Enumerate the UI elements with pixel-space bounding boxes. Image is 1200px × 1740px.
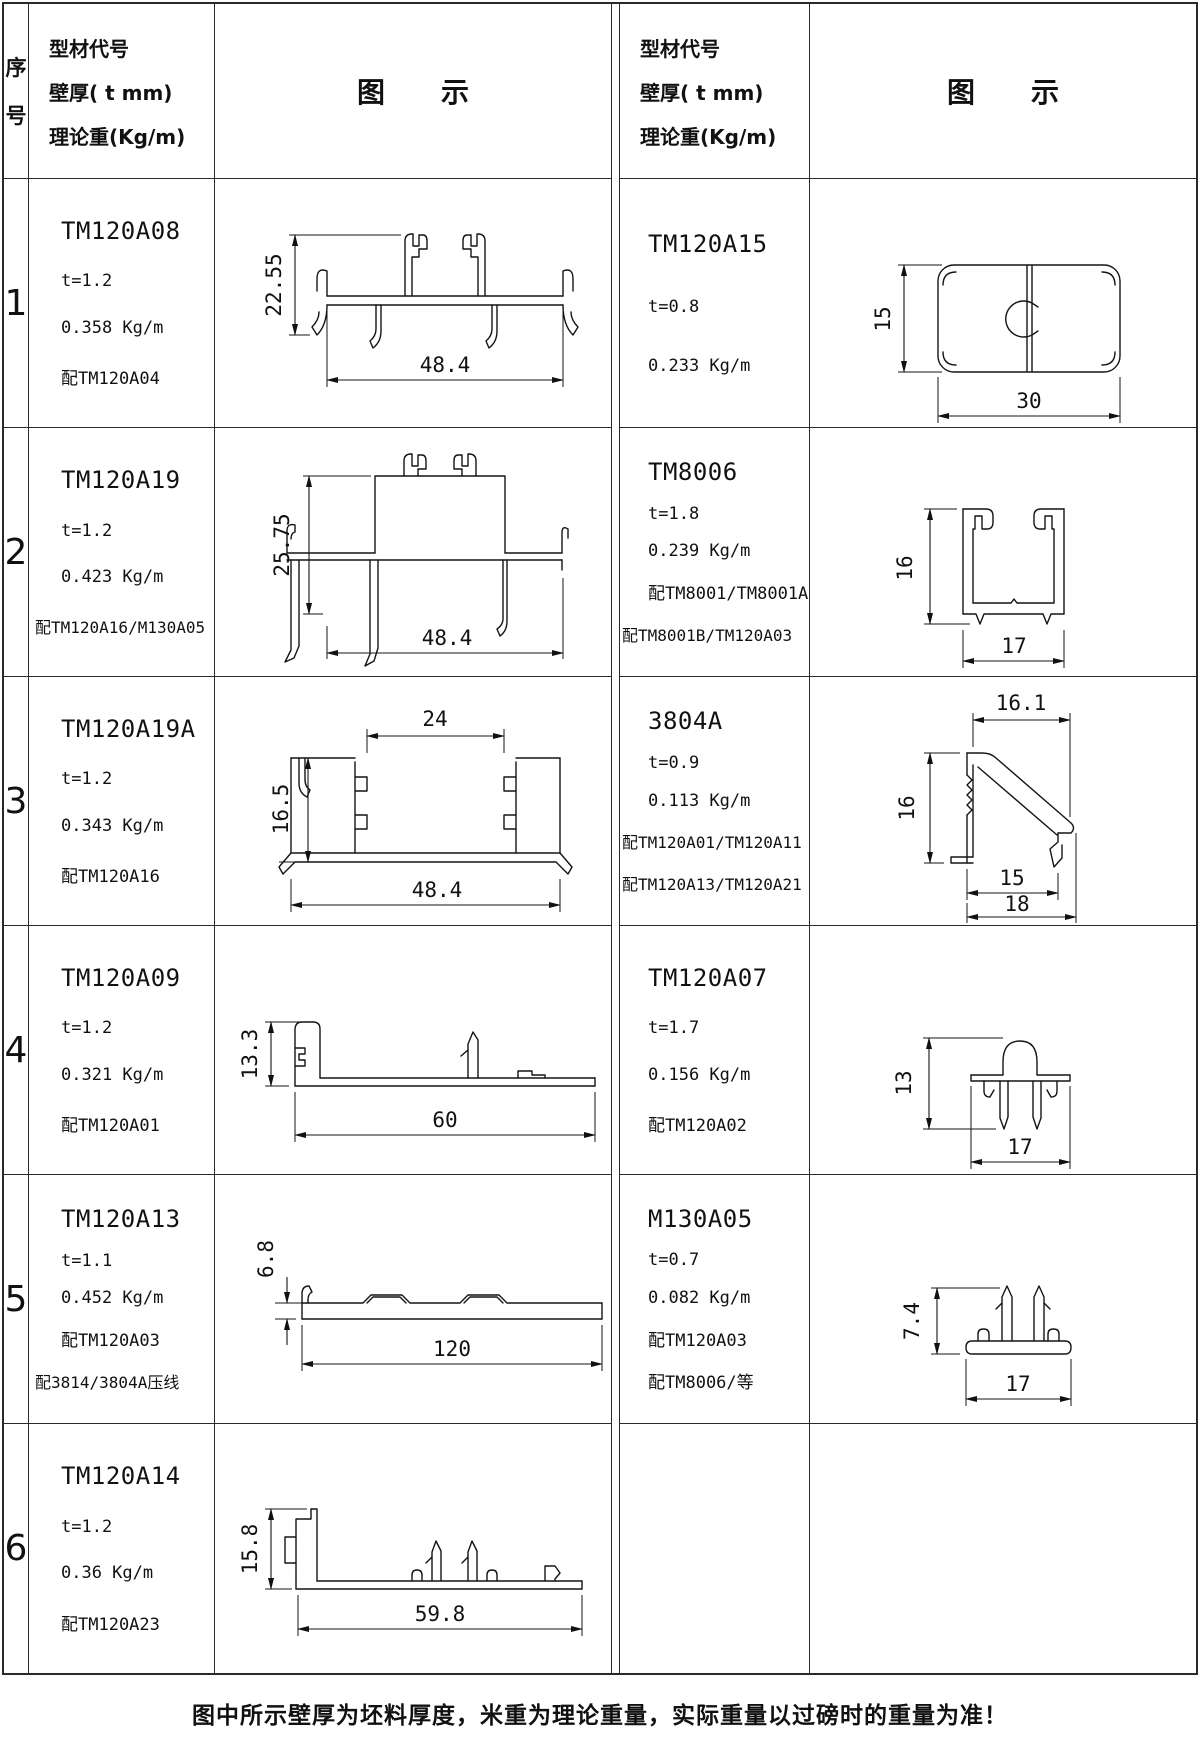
table-divider <box>612 1424 620 1673</box>
profile-code: M130A05 <box>648 1205 753 1233</box>
wall-thickness: t=1.7 <box>648 1018 699 1038</box>
header-spec-line: 型材代号 <box>49 33 214 62</box>
header-seq: 序 号 <box>4 4 29 179</box>
profile-code: TM120A13 <box>61 1205 181 1233</box>
header-spec-line: 壁厚( t mm) <box>49 77 214 106</box>
profile-drawing-tm8006: 16 17 <box>810 428 1194 674</box>
diagram-cell-tm120a15: 15 30 <box>810 179 1196 428</box>
dim-width-label: 30 <box>1016 389 1041 413</box>
wall-thickness: t=0.9 <box>648 753 699 773</box>
spec-cell-tm120a13: TM120A13 t=1.1 0.452 Kg/m 配TM120A03 配381… <box>29 1175 215 1424</box>
wall-thickness: t=1.2 <box>61 1018 112 1038</box>
diagram-cell-tm8006: 16 17 <box>810 428 1196 677</box>
wall-thickness: t=1.2 <box>61 1517 112 1537</box>
spec-cell-tm120a19: TM120A19 t=1.2 0.423 Kg/m 配TM120A16/M130… <box>29 428 215 677</box>
header-seq-bottom: 号 <box>6 100 27 130</box>
matching-profiles: 配TM120A01 <box>61 1111 160 1136</box>
header-spec-line: 型材代号 <box>640 33 809 62</box>
profile-code: TM120A15 <box>648 230 768 258</box>
profile-drawing-3804a: 16.1 16 15 18 <box>810 677 1194 923</box>
seq-cell: 4 <box>4 926 29 1175</box>
spec-cell-tm120a14: TM120A14 t=1.2 0.36 Kg/m 配TM120A23 <box>29 1424 215 1673</box>
diagram-cell-tm120a19: 25.75 48.4 <box>215 428 612 677</box>
matching-profiles: 配TM8001B/TM120A03 <box>622 622 792 646</box>
table-divider <box>612 926 620 1175</box>
header-spec-right: 型材代号 壁厚( t mm) 理论重(Kg/m) <box>620 4 810 179</box>
dim-height-label: 13 <box>892 1070 916 1095</box>
dim-height-label: 16 <box>893 555 917 580</box>
spec-cell-tm120a08: TM120A08 t=1.2 0.358 Kg/m 配TM120A04 <box>29 179 215 428</box>
profile-drawing-tm120a19a: 24 16.5 48.4 <box>215 677 610 923</box>
unit-weight: 0.423 Kg/m <box>61 567 163 587</box>
dim-width-label: 48.4 <box>412 878 463 902</box>
dim-inner-width-label: 15 <box>999 866 1024 890</box>
profile-code: TM120A19 <box>61 466 181 494</box>
table-divider <box>612 677 620 926</box>
dim-top-label: 16.1 <box>996 691 1047 715</box>
footer-note: 图中所示壁厚为坯料厚度，米重为理论重量，实际重量以过磅时的重量为准！ <box>0 1696 1200 1730</box>
dim-height-label: 16.5 <box>269 784 293 835</box>
diagram-cell-tm120a08: 22.55 48.4 <box>215 179 612 428</box>
spec-cell-tm120a19a: TM120A19A t=1.2 0.343 Kg/m 配TM120A16 <box>29 677 215 926</box>
matching-profiles: 配TM120A01/TM120A11 <box>622 829 802 853</box>
profile-code: TM8006 <box>648 458 738 486</box>
wall-thickness: t=1.2 <box>61 769 112 789</box>
unit-weight: 0.358 Kg/m <box>61 318 163 338</box>
dim-height-label: 16 <box>895 795 919 820</box>
profile-drawing-tm120a07: 13 17 <box>810 926 1194 1172</box>
wall-thickness: t=1.1 <box>61 1251 112 1271</box>
dim-height-label: 13.3 <box>238 1029 262 1080</box>
header-spec-line: 理论重(Kg/m) <box>640 121 809 150</box>
dim-top-label: 24 <box>422 707 447 731</box>
dim-width-label: 48.4 <box>422 626 473 650</box>
header-spec-line: 理论重(Kg/m) <box>49 121 214 150</box>
profile-code: TM120A07 <box>648 964 768 992</box>
profile-drawing-tm120a14: 15.8 59.8 <box>215 1424 610 1670</box>
profile-drawing-tm120a09: 13.3 60 <box>215 926 610 1172</box>
table-divider <box>612 428 620 677</box>
matching-profiles: 配TM120A02 <box>648 1111 747 1136</box>
spec-cell-tm120a09: TM120A09 t=1.2 0.321 Kg/m 配TM120A01 <box>29 926 215 1175</box>
spec-cell-tm8006: TM8006 t=1.8 0.239 Kg/m 配TM8001/TM8001A … <box>620 428 810 677</box>
unit-weight: 0.113 Kg/m <box>648 791 750 811</box>
dim-height-label: 22.55 <box>262 253 286 316</box>
dim-width-label: 48.4 <box>420 353 471 377</box>
profile-code: TM120A09 <box>61 964 181 992</box>
wall-thickness: t=0.8 <box>648 297 699 317</box>
dim-outer-width-label: 18 <box>1004 892 1029 916</box>
profile-code: TM120A19A <box>61 715 196 743</box>
matching-profiles: 配TM120A16/M130A05 <box>35 614 205 638</box>
seq-cell: 6 <box>4 1424 29 1673</box>
profile-code: TM120A14 <box>61 1462 181 1490</box>
profile-table: 序 号 型材代号 壁厚( t mm) 理论重(Kg/m) 图 示 型材代号 壁厚… <box>2 2 1198 1675</box>
wall-thickness: t=1.8 <box>648 504 699 524</box>
spec-cell-3804a: 3804A t=0.9 0.113 Kg/m 配TM120A01/TM120A1… <box>620 677 810 926</box>
dim-width-label: 59.8 <box>415 1602 466 1626</box>
dim-width-label: 17 <box>1005 1372 1030 1396</box>
dim-width-label: 17 <box>1001 634 1026 658</box>
unit-weight: 0.082 Kg/m <box>648 1288 750 1308</box>
matching-profiles: 配TM120A04 <box>61 364 160 389</box>
diagram-cell-tm120a07: 13 17 <box>810 926 1196 1175</box>
header-spec-left: 型材代号 壁厚( t mm) 理论重(Kg/m) <box>29 4 215 179</box>
spec-cell-tm120a15: TM120A15 t=0.8 0.233 Kg/m <box>620 179 810 428</box>
diagram-cell-m130a05: 7.4 17 <box>810 1175 1196 1424</box>
diagram-cell-tm120a19a: 24 16.5 48.4 <box>215 677 612 926</box>
profile-code: TM120A08 <box>61 217 181 245</box>
spec-cell-empty <box>620 1424 810 1673</box>
diagram-cell-empty <box>810 1424 1196 1673</box>
matching-profiles: 配TM120A13/TM120A21 <box>622 871 802 895</box>
diagram-cell-3804a: 16.1 16 15 18 <box>810 677 1196 926</box>
spec-cell-m130a05: M130A05 t=0.7 0.082 Kg/m 配TM120A03 配TM80… <box>620 1175 810 1424</box>
table-divider <box>612 1175 620 1424</box>
profile-drawing-tm120a19: 25.75 48.4 <box>215 428 610 674</box>
dim-height-label: 7.4 <box>900 1302 924 1340</box>
dim-width-label: 120 <box>433 1337 471 1361</box>
matching-profiles: 配TM120A16 <box>61 862 160 887</box>
wall-thickness: t=0.7 <box>648 1250 699 1270</box>
unit-weight: 0.452 Kg/m <box>61 1288 163 1308</box>
matching-profiles: 配TM8001/TM8001A <box>648 579 808 604</box>
matching-profiles: 配TM120A23 <box>61 1610 160 1635</box>
dim-width-label: 60 <box>432 1108 457 1132</box>
dim-height-label: 15 <box>871 306 895 331</box>
profile-drawing-tm120a08: 22.55 48.4 <box>215 179 610 425</box>
dim-height-label: 15.8 <box>238 1524 262 1575</box>
matching-profiles: 配TM120A03 <box>648 1326 747 1351</box>
diagram-cell-tm120a09: 13.3 60 <box>215 926 612 1175</box>
profile-drawing-tm120a15: 15 30 <box>810 179 1194 425</box>
dim-width-label: 17 <box>1007 1135 1032 1159</box>
profile-code: 3804A <box>648 707 723 735</box>
profile-drawing-tm120a13: 6.8 120 <box>215 1175 610 1421</box>
matching-profiles: 配3814/3804A压线 <box>35 1369 179 1393</box>
unit-weight: 0.36 Kg/m <box>61 1563 153 1583</box>
dim-height-label: 25.75 <box>270 513 294 576</box>
matching-profiles: 配TM120A03 <box>61 1326 160 1351</box>
profile-drawing-m130a05: 7.4 17 <box>810 1175 1194 1421</box>
seq-cell: 5 <box>4 1175 29 1424</box>
header-spec-line: 壁厚( t mm) <box>640 77 809 106</box>
table-divider <box>612 179 620 428</box>
table-divider <box>612 4 620 179</box>
header-seq-top: 序 <box>6 52 27 82</box>
unit-weight: 0.343 Kg/m <box>61 816 163 836</box>
wall-thickness: t=1.2 <box>61 521 112 541</box>
wall-thickness: t=1.2 <box>61 271 112 291</box>
catalog-page: 序 号 型材代号 壁厚( t mm) 理论重(Kg/m) 图 示 型材代号 壁厚… <box>0 0 1200 1740</box>
unit-weight: 0.233 Kg/m <box>648 356 750 376</box>
seq-cell: 1 <box>4 179 29 428</box>
spec-cell-tm120a07: TM120A07 t=1.7 0.156 Kg/m 配TM120A02 <box>620 926 810 1175</box>
matching-profiles: 配TM8006/等 <box>648 1368 754 1393</box>
seq-cell: 3 <box>4 677 29 926</box>
dim-height-label: 6.8 <box>254 1240 278 1278</box>
header-diagram-right: 图 示 <box>810 4 1196 179</box>
unit-weight: 0.239 Kg/m <box>648 541 750 561</box>
unit-weight: 0.321 Kg/m <box>61 1065 163 1085</box>
unit-weight: 0.156 Kg/m <box>648 1065 750 1085</box>
diagram-cell-tm120a14: 15.8 59.8 <box>215 1424 612 1673</box>
diagram-cell-tm120a13: 6.8 120 <box>215 1175 612 1424</box>
seq-cell: 2 <box>4 428 29 677</box>
header-diagram-left: 图 示 <box>215 4 612 179</box>
